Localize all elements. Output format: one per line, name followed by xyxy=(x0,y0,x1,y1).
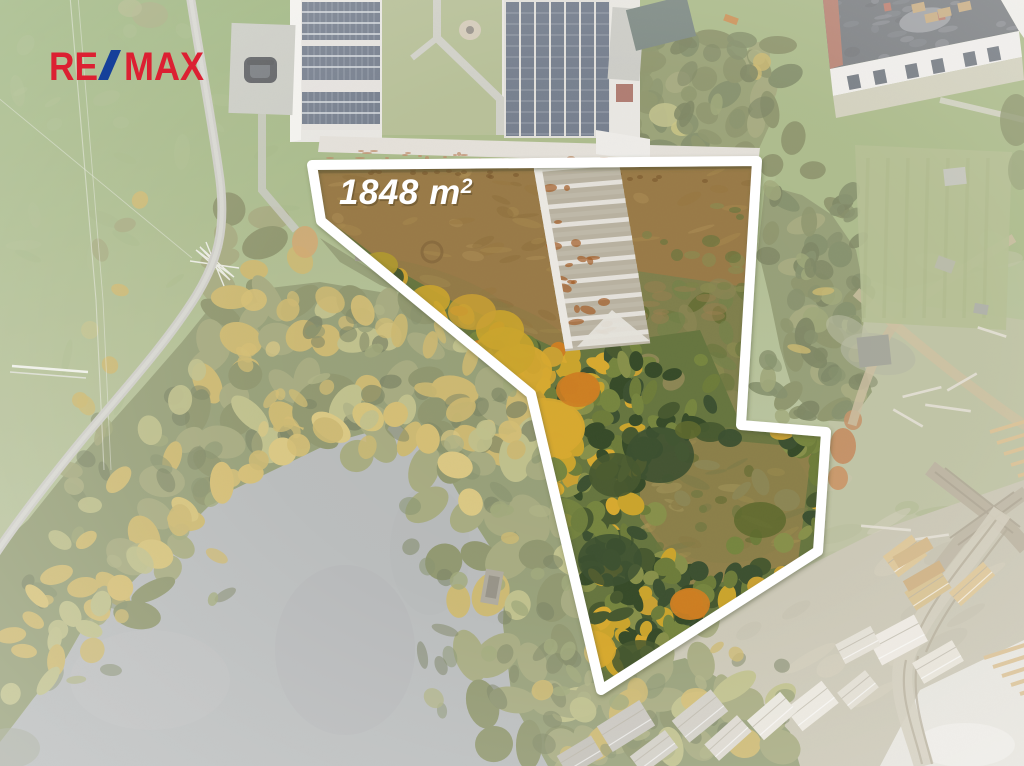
svg-text:RE: RE xyxy=(49,45,98,89)
svg-text:MAX: MAX xyxy=(124,45,204,89)
svg-text:1848 m2: 1848 m2 xyxy=(339,173,473,212)
